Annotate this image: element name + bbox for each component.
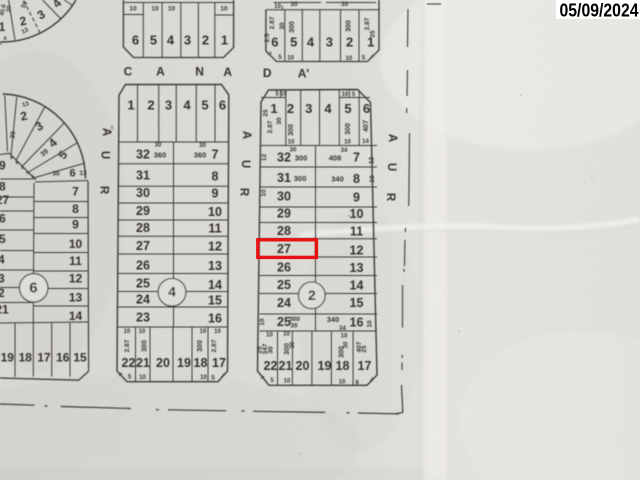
svg-text:10: 10: [200, 329, 207, 335]
svg-text:1: 1: [270, 101, 277, 116]
svg-text:12: 12: [369, 157, 376, 165]
svg-text:31: 31: [136, 168, 150, 182]
svg-text:29: 29: [277, 206, 291, 220]
svg-text:R: R: [98, 186, 110, 195]
svg-text:10: 10: [284, 379, 291, 385]
svg-text:R: R: [237, 188, 249, 197]
svg-text:1: 1: [127, 97, 134, 112]
svg-text:17: 17: [212, 356, 226, 370]
svg-text:3: 3: [165, 97, 172, 112]
svg-text:C: C: [124, 65, 133, 79]
svg-text:9: 9: [353, 190, 360, 204]
svg-text:10: 10: [346, 56, 353, 62]
svg-text:26: 26: [277, 260, 291, 274]
svg-text:360: 360: [154, 150, 167, 159]
svg-text:10: 10: [129, 6, 137, 13]
svg-text:32: 32: [136, 147, 150, 161]
svg-text:05/09/2024: 05/09/2024: [560, 1, 639, 21]
svg-text:20: 20: [156, 356, 170, 370]
svg-text:340: 340: [331, 174, 344, 183]
svg-text:14: 14: [350, 278, 364, 292]
svg-text:A: A: [156, 65, 165, 79]
svg-text:10: 10: [287, 55, 294, 61]
svg-text:10: 10: [342, 92, 349, 98]
svg-text:A: A: [223, 65, 232, 79]
svg-text:8: 8: [212, 169, 219, 183]
svg-text:10: 10: [214, 329, 221, 335]
svg-text:29: 29: [136, 204, 150, 218]
svg-text:2.87: 2.87: [269, 16, 276, 29]
svg-text:300: 300: [345, 123, 352, 135]
svg-text:10: 10: [220, 6, 228, 13]
svg-text:10: 10: [200, 375, 207, 381]
svg-text:10: 10: [69, 237, 83, 251]
svg-text:5: 5: [201, 97, 208, 112]
svg-text:17: 17: [37, 351, 51, 365]
svg-text:4: 4: [307, 34, 315, 49]
svg-text:30: 30: [341, 1, 349, 8]
svg-text:32: 32: [277, 150, 291, 164]
svg-text:300: 300: [295, 153, 308, 162]
svg-text:30: 30: [276, 117, 283, 125]
svg-text:27: 27: [136, 239, 150, 253]
svg-text:10: 10: [283, 332, 290, 338]
svg-text:28: 28: [136, 221, 150, 235]
svg-text:19: 19: [177, 356, 191, 370]
svg-text:10: 10: [339, 379, 346, 385]
svg-text:11: 11: [208, 221, 221, 235]
svg-text:24: 24: [136, 292, 150, 306]
svg-text:360: 360: [194, 150, 207, 159]
svg-text:13: 13: [79, 170, 87, 177]
svg-text:29: 29: [0, 159, 6, 173]
svg-text:14: 14: [208, 278, 222, 292]
svg-text:10: 10: [369, 175, 376, 183]
svg-text:19: 19: [318, 359, 332, 373]
svg-text:25: 25: [369, 30, 376, 38]
svg-text:2.87: 2.87: [124, 339, 131, 352]
svg-text:25: 25: [0, 232, 6, 246]
svg-text:2.5: 2.5: [264, 33, 271, 42]
svg-text:30: 30: [199, 143, 206, 149]
svg-text:24: 24: [277, 296, 291, 310]
svg-text:22: 22: [122, 356, 136, 370]
svg-text:4: 4: [324, 101, 332, 116]
svg-text:30: 30: [290, 1, 298, 8]
svg-text:10: 10: [274, 4, 281, 10]
svg-text:15: 15: [350, 296, 364, 310]
svg-text:10: 10: [344, 140, 351, 146]
svg-text:21: 21: [279, 359, 293, 373]
svg-text:407: 407: [363, 120, 370, 132]
svg-text:2: 2: [346, 34, 353, 49]
svg-text:31: 31: [277, 171, 291, 185]
svg-text:300: 300: [294, 174, 307, 183]
svg-text:U: U: [98, 151, 110, 159]
svg-text:300: 300: [346, 20, 353, 32]
svg-text:4: 4: [167, 32, 175, 47]
svg-text:10: 10: [280, 92, 287, 98]
svg-text:13: 13: [69, 290, 83, 304]
svg-text:3: 3: [326, 34, 333, 49]
svg-text:10: 10: [151, 6, 159, 13]
svg-text:34: 34: [341, 148, 348, 154]
svg-text:10: 10: [266, 332, 273, 338]
svg-text:8: 8: [72, 202, 79, 216]
svg-text:11: 11: [69, 254, 82, 268]
svg-text:x: x: [110, 124, 114, 131]
svg-text:23: 23: [136, 310, 150, 324]
svg-text:23: 23: [0, 272, 5, 286]
svg-text:10: 10: [259, 318, 266, 326]
svg-text:30: 30: [277, 189, 291, 203]
svg-text:300: 300: [197, 340, 204, 352]
svg-text:22: 22: [264, 359, 278, 373]
svg-text:N: N: [195, 65, 204, 79]
svg-text:5: 5: [344, 101, 351, 116]
svg-text:7: 7: [72, 185, 79, 199]
svg-text:10: 10: [208, 205, 222, 219]
svg-text:2: 2: [147, 97, 154, 112]
svg-text:9: 9: [72, 217, 79, 231]
svg-text:12: 12: [261, 154, 268, 162]
svg-text:14: 14: [362, 139, 369, 145]
svg-text:26: 26: [0, 212, 6, 226]
svg-text:A': A': [298, 67, 310, 81]
svg-text:16: 16: [56, 351, 70, 365]
svg-text:R: R: [384, 193, 396, 202]
svg-text:30: 30: [290, 341, 296, 348]
svg-text:16: 16: [350, 315, 364, 329]
svg-text:U: U: [385, 163, 397, 171]
svg-text:6: 6: [219, 97, 226, 112]
svg-text:30: 30: [52, 171, 60, 178]
svg-text:6: 6: [363, 101, 370, 116]
svg-text:30: 30: [344, 341, 350, 348]
svg-text:11: 11: [350, 224, 363, 238]
svg-text:5: 5: [290, 34, 297, 49]
svg-text:25: 25: [263, 109, 270, 117]
svg-text:25: 25: [277, 278, 291, 292]
svg-text:21: 21: [136, 356, 150, 370]
svg-text:14: 14: [69, 309, 83, 323]
svg-text:A: A: [240, 131, 252, 139]
svg-text:300: 300: [289, 21, 296, 33]
svg-text:26: 26: [136, 258, 150, 272]
svg-text:13: 13: [350, 261, 364, 275]
svg-text:30: 30: [136, 186, 150, 200]
svg-text:3: 3: [305, 101, 312, 116]
svg-text:13: 13: [208, 259, 222, 273]
svg-text:27: 27: [277, 242, 291, 256]
svg-text:2: 2: [287, 101, 294, 116]
svg-text:4: 4: [183, 97, 191, 112]
svg-text:22: 22: [0, 286, 5, 300]
svg-text:10: 10: [350, 207, 364, 221]
svg-text:20: 20: [296, 359, 310, 373]
svg-text:6: 6: [271, 34, 278, 49]
svg-text:7: 7: [212, 147, 219, 161]
svg-text:25: 25: [136, 276, 150, 290]
svg-text:6: 6: [132, 32, 139, 47]
svg-text:18: 18: [19, 351, 33, 365]
svg-text:12: 12: [69, 272, 83, 286]
svg-text:U: U: [239, 160, 251, 168]
svg-text:28: 28: [277, 224, 291, 238]
svg-text:12: 12: [350, 243, 364, 257]
svg-text:17: 17: [358, 359, 372, 373]
svg-text:2.87: 2.87: [364, 17, 371, 30]
svg-text:27: 27: [0, 193, 9, 207]
svg-text:300: 300: [288, 124, 295, 136]
svg-text:10: 10: [139, 375, 146, 381]
svg-text:10: 10: [139, 329, 146, 335]
svg-text:A: A: [386, 134, 398, 142]
svg-text:3: 3: [184, 32, 191, 47]
svg-text:15: 15: [208, 293, 222, 307]
svg-text:2: 2: [202, 32, 209, 47]
svg-text:2: 2: [308, 287, 316, 303]
svg-text:8: 8: [353, 172, 360, 186]
svg-text:25: 25: [361, 345, 368, 353]
svg-text:10: 10: [261, 189, 268, 197]
svg-text:10: 10: [367, 320, 374, 328]
svg-text:10: 10: [124, 329, 131, 335]
svg-text:408: 408: [329, 153, 342, 162]
svg-text:2.87: 2.87: [267, 120, 274, 133]
svg-text:1: 1: [221, 32, 228, 47]
svg-text:24: 24: [0, 253, 5, 267]
svg-text:4: 4: [168, 284, 176, 300]
svg-text:28: 28: [0, 180, 6, 194]
svg-text:5: 5: [150, 32, 157, 47]
svg-text:6: 6: [69, 167, 75, 179]
svg-text:10: 10: [168, 6, 176, 13]
svg-text:30: 30: [155, 143, 162, 149]
svg-text:21: 21: [0, 303, 9, 317]
svg-text:30: 30: [290, 323, 298, 330]
svg-text:340: 340: [327, 315, 340, 324]
svg-text:7: 7: [353, 150, 360, 164]
svg-text:12: 12: [208, 239, 222, 253]
svg-text:15: 15: [73, 351, 87, 365]
svg-text:10: 10: [288, 140, 295, 146]
svg-text:300: 300: [141, 340, 148, 352]
svg-text:30: 30: [268, 346, 275, 354]
svg-text:34: 34: [339, 326, 346, 332]
svg-text:1: 1: [0, 20, 6, 34]
svg-text:10: 10: [341, 333, 348, 339]
svg-text:30: 30: [279, 22, 286, 30]
svg-text:19: 19: [1, 351, 15, 365]
svg-text:18: 18: [194, 356, 208, 370]
svg-text:9: 9: [212, 186, 219, 200]
svg-text:D: D: [263, 66, 272, 80]
svg-text:6: 6: [29, 279, 37, 296]
svg-text:2.87: 2.87: [211, 339, 218, 352]
svg-text:18: 18: [336, 359, 350, 373]
svg-text:16: 16: [208, 311, 222, 325]
